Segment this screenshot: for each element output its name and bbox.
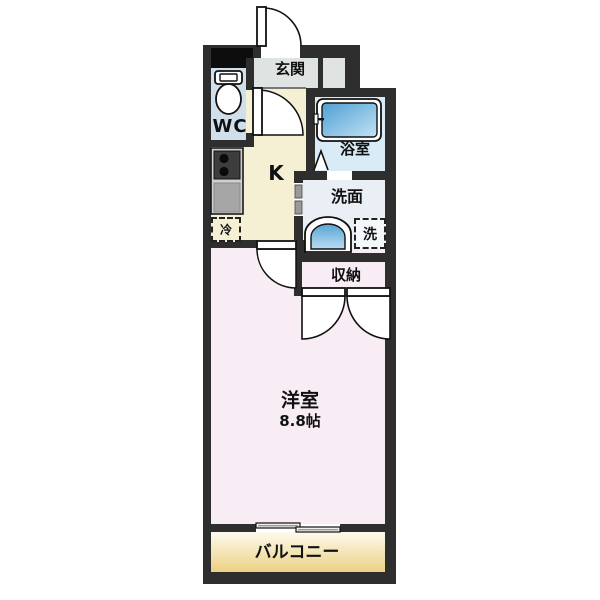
left-wall — [203, 45, 211, 532]
balcony-bottom-wall — [203, 572, 396, 584]
entrance-door-opening — [261, 45, 300, 58]
storage-left-wall — [294, 262, 302, 296]
laundry-space-box: 洗 — [354, 218, 386, 249]
entrance-door-icon — [257, 7, 301, 46]
fridge-label: 冷 — [220, 221, 232, 238]
fridge-space-box: 冷 — [211, 217, 241, 242]
genkan-side-compartment — [323, 53, 345, 88]
genkan-step-line — [254, 87, 306, 89]
bath-top-wall — [306, 88, 396, 97]
main-room-label: 洋室 — [281, 391, 319, 412]
window-opening — [256, 524, 340, 532]
washroom-label: 洗面 — [331, 188, 363, 206]
wc-right-wall-upper — [246, 58, 254, 90]
floor-plan: 冷 洗 玄関 WC K 浴室 洗面 収納 洋室 8.8帖 バルコニー — [0, 0, 600, 600]
bath-left-wall — [306, 88, 315, 180]
bath-label: 浴室 — [340, 141, 370, 158]
wc-label: WC — [212, 117, 247, 137]
storage-label: 収納 — [331, 267, 361, 284]
bath-floor — [315, 97, 385, 171]
bath-door-opening — [327, 171, 352, 180]
washroom-door-opening — [294, 183, 303, 216]
right-wall — [385, 88, 396, 584]
genkan-right-wall — [345, 45, 360, 88]
kitchen-label: K — [268, 162, 284, 184]
genkan-compartment-divider — [318, 53, 323, 88]
kitchen-washroom-corner — [296, 240, 306, 262]
balcony-label: バルコニー — [255, 544, 340, 563]
kitchen-room-door-opening — [257, 240, 296, 248]
wc-bottom-wall — [211, 140, 254, 147]
balcony-left-wall — [203, 532, 211, 572]
genkan-label: 玄関 — [275, 61, 305, 78]
laundry-label: 洗 — [363, 224, 377, 244]
washroom-bottom-wall — [294, 253, 396, 262]
main-room-size-label: 8.8帖 — [279, 413, 321, 430]
